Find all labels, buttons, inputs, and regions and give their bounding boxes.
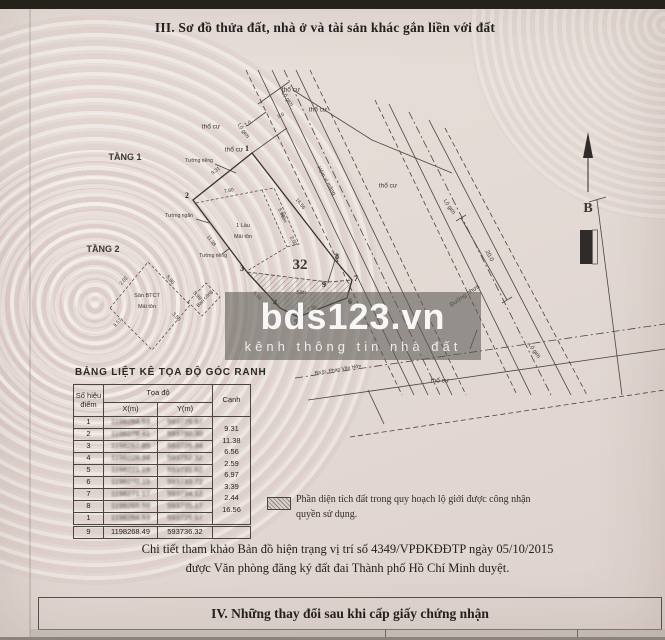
point-id: 3 [74,441,104,453]
map-label: 1.0 [244,120,252,128]
edge-length: 16.56 [213,504,250,516]
coord-y: 593725.67 [158,513,213,526]
point-id: 4 [74,453,104,465]
col-header-edge: Cạnh [213,385,251,417]
map-label: 2.50 [289,236,298,247]
coord-x: 1198267.85 [104,441,158,453]
coord-y: 593733.72 [158,477,213,489]
map-label: 2.02 [119,276,129,287]
footer-note: Chi tiết tham khảo Bản đồ hiện trạng vị … [30,540,665,578]
edge-length: 2.59 [213,458,250,470]
map-label: Lộ giới [527,343,541,360]
map-label: 9.31 [211,166,222,176]
edge-length: 11.38 [213,435,250,447]
edge-length: 9.31 [213,423,250,435]
coord-x: 1198265.59 [104,501,158,513]
edge-length: 3.39 [213,481,250,493]
map-label: TẦNG 1 [108,154,141,163]
coord-y: 593736.32 [158,526,213,539]
map-label: Mái tôn [234,234,252,240]
map-label: 16.56 [294,198,306,211]
coord-x: 1198268.49 [104,526,158,539]
vertex-label-8: 8 [335,253,339,261]
coord-y: 593752.32 [158,453,213,465]
map-label: 11.38 [205,235,216,248]
map-label: thổ cư [379,183,397,190]
coord-x: 1198271.17 [104,489,158,501]
vertex-label-1: 1 [245,145,249,153]
coord-x: 1198270.15 [104,477,158,489]
map-label: 5.90 [165,275,175,286]
col-header-coords: Tọa độ [104,385,213,403]
map-label: Lộ giới [442,199,456,216]
coord-x: 1198278.41 [104,429,158,441]
col-header-x: X(m) [104,403,158,417]
edge-empty [213,526,251,539]
map-label: thổ cư [309,107,327,114]
vertex-label-9: 9 [322,281,326,289]
edge-length: 6.56 [213,446,250,458]
map-label: thổ cư [431,378,449,385]
map-label: 32 [293,259,308,274]
map-label: 1 Lầu [236,223,250,229]
map-label: 3.50 [171,312,181,323]
coord-table: Số hiệu điểm Tọa độ Cạnh X(m) Y(m) 11198… [73,384,251,539]
legend-hatch-swatch [267,497,291,510]
coord-x: 1198284.53 [104,417,158,429]
photo-top-edge [0,0,665,9]
point-id: 9 [74,526,104,539]
edge-length: 2.44 [213,492,250,504]
map-label: Sân BTCT [134,293,160,299]
map-label: Tường riêng [185,159,213,164]
section3-title: III. Sơ đồ thửa đất, nhà ở và tài sản kh… [45,20,605,36]
map-label: 5.90 [277,208,286,219]
point-id: 5 [74,465,104,477]
map-label: Mái tôn [138,304,156,310]
col-header-y: Y(m) [158,403,213,417]
edge-column: 9.3111.386.562.596.973.392.4416.56 [213,417,251,526]
vertex-label-7: 7 [354,275,358,283]
watermark-brand: bds123.vn [260,299,445,335]
watermark-tagline: kênh thông tin nhà đất [245,339,462,354]
edge-length: 6.97 [213,469,250,481]
vertex-label-2: 2 [185,192,189,200]
point-id: 1 [74,417,104,429]
point-id: 7 [74,489,104,501]
point-id: 8 [74,501,104,513]
map-label: 7.80 [224,188,235,195]
map-label: Tường riêng [199,254,227,259]
coord-x: 1198284.53 [104,513,158,526]
map-label: TẦNG 2 [86,246,119,255]
section4-header: IV. Những thay đổi sau khi cấp giấy chứn… [38,597,662,630]
certificate-page: III. Sơ đồ thửa đất, nhà ở và tài sản kh… [0,0,665,640]
point-id: 1 [74,513,104,526]
point-id: 2 [74,429,104,441]
coord-row-9: 9 1198268.49 593736.32 [74,526,251,539]
coord-y: 593726.34 [158,441,213,453]
map-label: B [583,202,592,216]
map-label: thổ cư [225,147,243,154]
coord-y: 593775.87 [158,417,213,429]
vertex-label-3: 3 [240,265,244,273]
map-label: Ra Đ. Phan Văn Hớn [314,364,361,376]
map-label: 9.57 [113,318,123,329]
watermark-overlay: bds123.vn kênh thông tin nhà đất [225,292,481,360]
coord-x: 1198228.34 [104,453,158,465]
coord-table-title: BẢNG LIỆT KÊ TỌA ĐỘ GÓC RANH [75,367,266,378]
map-label: 3.0 [277,112,285,120]
coord-x: 1198221.19 [104,465,158,477]
coord-y: 593734.12 [158,489,213,501]
coord-y: 593731.62 [158,465,213,477]
map-label: Tường ngăn [165,214,193,219]
coord-y: 593735.17 [158,501,213,513]
col-header-point: Số hiệu điểm [74,385,104,417]
legend-text: Phần diện tích đất trong quy hoạch lộ gi… [296,493,626,522]
point-id: 6 [74,477,104,489]
map-label: thổ cư [202,124,220,131]
coord-row: 11198284.53593775.879.3111.386.562.596.9… [74,417,251,429]
map-label: 20.0 [484,249,495,262]
map-label: Hẻm xi măng [316,166,337,197]
coord-y: 593780.30 [158,429,213,441]
